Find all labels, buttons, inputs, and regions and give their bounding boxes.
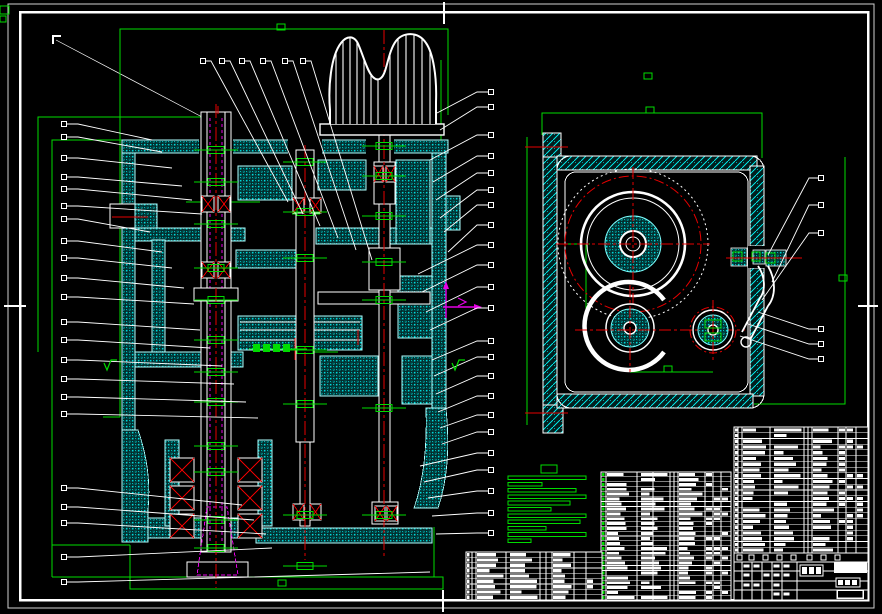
bom-text-blob (607, 522, 625, 525)
bom-text-blob (743, 457, 756, 460)
bom-text-blob (774, 445, 798, 448)
bom-text-blob (813, 457, 827, 460)
bom-text-blob (553, 569, 562, 572)
bom-text-blob (679, 567, 689, 570)
title-block-text-blob (774, 574, 780, 577)
bom-text-blob (722, 571, 728, 574)
bom-text-blob (714, 512, 720, 515)
dim-text-blob (273, 344, 280, 352)
bom-text-blob (847, 486, 853, 489)
bom-text-blob (641, 478, 655, 481)
bom-text-blob (641, 562, 659, 565)
bom-text-blob (477, 574, 503, 577)
bom-text-blob (743, 445, 766, 448)
bom-text-blob (857, 508, 863, 511)
dimension-marker-square (644, 73, 652, 79)
bom-index-mark (467, 569, 470, 572)
bom-text-blob (641, 488, 655, 491)
bom-text-blob (847, 440, 853, 443)
bom-text-blob (706, 522, 712, 525)
tech-requirements-line (508, 489, 576, 493)
title-block-text-blob (744, 584, 750, 587)
leader-line (772, 205, 821, 282)
bom-text-blob (607, 493, 629, 496)
bom-text-blob (714, 552, 720, 555)
tech-requirements-line (508, 526, 546, 530)
bom-text-blob (587, 585, 593, 588)
bom-text-blob (847, 428, 853, 431)
bom-index-mark (735, 549, 738, 552)
title-block-glyph-blob (802, 567, 807, 574)
bom-text-blob (714, 517, 720, 520)
leader-line (64, 124, 152, 140)
bom-text-blob (641, 552, 666, 555)
bom-text-blob (714, 581, 720, 584)
balloon-marker (62, 175, 67, 180)
bom-text-blob (722, 591, 728, 594)
balloon-marker (62, 295, 67, 300)
bom-text-blob (714, 586, 720, 589)
balloon-marker (489, 451, 494, 456)
bom-index-mark (467, 585, 470, 588)
bom-text-blob (641, 537, 650, 540)
bom-text-blob (706, 567, 712, 570)
bom-text-blob (510, 580, 537, 583)
balloon-marker (489, 263, 494, 268)
bom-table-bom_right (734, 427, 868, 553)
bom-text-blob (813, 497, 829, 500)
bom-text-blob (813, 440, 832, 443)
bom-text-blob (774, 520, 786, 523)
bom-text-blob (774, 434, 786, 437)
bom-index-mark (735, 543, 738, 546)
bom-text-blob (641, 473, 667, 476)
bom-text-blob (641, 567, 661, 570)
bom-text-blob (477, 590, 500, 593)
bom-text-blob (553, 558, 563, 561)
bom-text-blob (839, 491, 845, 494)
bom-text-blob (743, 520, 760, 523)
title-block-header-square (737, 555, 742, 560)
bom-index-mark (735, 520, 738, 523)
bom-text-blob (607, 596, 635, 599)
balloon-marker (261, 59, 266, 64)
bom-index-mark (467, 596, 470, 599)
bom-text-blob (607, 507, 626, 510)
bom-index-mark (735, 457, 738, 460)
bom-index-mark (602, 493, 605, 496)
balloon-marker (489, 306, 494, 311)
balloon-marker (819, 231, 824, 236)
balloon-marker (62, 555, 67, 560)
bom-text-blob (679, 591, 696, 594)
title-block-text-blob (754, 565, 760, 568)
leader-line (437, 92, 491, 113)
bom-text-blob (774, 451, 783, 454)
title-block-text-blob (744, 574, 750, 577)
tech-requirements-line (508, 514, 586, 518)
bom-text-blob (679, 503, 691, 506)
bom-text-blob (743, 428, 756, 431)
title-block-text-blob (774, 593, 780, 596)
dimension-marker-square (664, 366, 672, 372)
leader-line (442, 432, 491, 444)
bom-text-blob (847, 514, 853, 517)
title-block-text-blob (784, 565, 790, 568)
bom-index-mark (735, 463, 738, 466)
bom-text-blob (679, 562, 692, 565)
balloon-marker (819, 176, 824, 181)
balloon-marker (62, 187, 67, 192)
bom-index-mark (602, 542, 605, 545)
corner-mark (53, 36, 61, 44)
bom-text-blob (839, 451, 845, 454)
leader-line (768, 178, 821, 255)
bom-text-blob (743, 480, 754, 483)
bom-text-blob (641, 547, 667, 550)
balloon-marker (62, 521, 67, 526)
bom-text-blob (722, 498, 728, 501)
bom-table-bom_middle (601, 472, 731, 600)
bom-text-blob (477, 564, 496, 567)
bom-index-mark (602, 522, 605, 525)
bom-index-mark (735, 537, 738, 540)
balloon-marker (489, 203, 494, 208)
bom-text-blob (774, 514, 787, 517)
bom-text-blob (839, 503, 845, 506)
bom-text-blob (641, 596, 667, 599)
balloon-marker (489, 355, 494, 360)
bom-text-blob (679, 571, 688, 574)
bom-text-blob (641, 532, 653, 535)
bom-text-blob (679, 498, 697, 501)
bom-text-blob (813, 526, 831, 529)
balloon-marker (301, 59, 306, 64)
leader-line (418, 245, 491, 274)
bom-text-blob (679, 473, 695, 476)
balloon-marker (489, 188, 494, 193)
bom-index-mark (735, 445, 738, 448)
bom-text-blob (706, 473, 712, 476)
balloon-marker (62, 156, 67, 161)
title-block-header-square (777, 555, 782, 560)
title-block-header-square (763, 555, 768, 560)
bom-text-blob (839, 428, 845, 431)
bom-text-blob (813, 486, 829, 489)
bom-text-blob (813, 451, 823, 454)
bom-text-blob (774, 480, 783, 483)
technical-requirements-block (508, 465, 586, 543)
bom-text-blob (607, 581, 630, 584)
bom-text-blob (722, 547, 728, 550)
bom-text-blob (714, 537, 720, 540)
bom-text-blob (641, 581, 650, 584)
balloon-marker (240, 59, 245, 64)
bom-text-blob (706, 557, 712, 560)
bom-index-mark (467, 558, 470, 561)
bom-text-blob (553, 574, 565, 577)
bom-text-blob (857, 497, 863, 500)
bom-text-blob (587, 580, 593, 583)
bom-text-blob (510, 574, 529, 577)
title-block-text-blob (774, 584, 780, 587)
tech-requirements-title (541, 465, 557, 473)
bom-index-mark (735, 497, 738, 500)
balloon-marker (62, 505, 67, 510)
bom-index-mark (602, 517, 605, 520)
bom-text-blob (743, 463, 761, 466)
title-block-text-blob (764, 574, 770, 577)
balloon-marker (62, 580, 67, 585)
bom-text-blob (641, 498, 663, 501)
balloon-marker (489, 489, 494, 494)
bom-index-mark (602, 473, 605, 476)
balloon-marker (489, 171, 494, 176)
bom-text-blob (743, 549, 764, 552)
leader-line (64, 548, 272, 557)
title-block-header-square (807, 555, 812, 560)
bom-text-blob (774, 503, 787, 506)
bom-text-blob (679, 532, 696, 535)
bom-text-blob (553, 564, 571, 567)
bom-text-blob (743, 531, 761, 534)
bom-index-mark (735, 491, 738, 494)
bom-text-blob (857, 474, 863, 477)
bom-index-mark (467, 580, 470, 583)
bom-text-blob (641, 571, 657, 574)
bom-text-blob (813, 428, 828, 431)
bom-text-blob (607, 512, 620, 515)
bom-text-blob (477, 596, 493, 599)
bom-text-blob (641, 512, 650, 515)
bom-text-blob (607, 488, 626, 491)
edge-mark (0, 16, 6, 22)
bom-text-blob (607, 537, 619, 540)
balloon-marker (220, 59, 225, 64)
balloon-marker (489, 413, 494, 418)
bom-index-mark (467, 553, 470, 556)
bom-text-blob (743, 468, 760, 471)
cad-sheet (0, 0, 882, 614)
bom-index-mark (602, 532, 605, 535)
bom-text-blob (706, 483, 712, 486)
bom-text-blob (743, 497, 753, 500)
bom-text-blob (774, 463, 796, 466)
bom-text-blob (510, 585, 536, 588)
dim-text-blob (263, 344, 270, 352)
balloon-marker (489, 154, 494, 159)
balloon-marker (819, 203, 824, 208)
bom-text-blob (813, 463, 826, 466)
bom-text-blob (706, 596, 712, 599)
tech-requirements-line (508, 539, 531, 543)
title-block-header-square (791, 555, 796, 560)
side-housing (543, 133, 764, 433)
bom-text-blob (679, 488, 691, 491)
dim-text-blob (283, 344, 290, 352)
bom-text-blob (813, 508, 834, 511)
bom-text-blob (813, 549, 833, 552)
bom-index-mark (602, 503, 605, 506)
bom-text-blob (706, 517, 712, 520)
bom-text-blob (743, 526, 753, 529)
title-block-header-square (835, 555, 840, 560)
bom-text-blob (857, 486, 863, 489)
bom-text-blob (607, 567, 628, 570)
bom-text-blob (679, 483, 696, 486)
bom-text-blob (839, 520, 845, 523)
bom-text-blob (510, 564, 525, 567)
balloon-marker (489, 394, 494, 399)
bom-text-blob (722, 488, 728, 491)
bom-index-mark (735, 428, 738, 431)
bom-text-blob (857, 514, 863, 517)
bom-text-blob (607, 503, 621, 506)
leader-line (758, 312, 821, 329)
bom-text-blob (553, 596, 566, 599)
balloon-marker (819, 327, 824, 332)
bom-index-mark (602, 483, 605, 486)
balloon-marker (489, 105, 494, 110)
leader-line (64, 241, 162, 252)
horizontal-rod (318, 292, 430, 304)
bom-text-blob (679, 581, 696, 584)
bom-text-blob (607, 557, 621, 560)
bom-text-blob (706, 581, 712, 584)
tech-requirements-line (508, 533, 586, 537)
bom-text-blob (706, 552, 712, 555)
bom-index-mark (467, 574, 470, 577)
title-block-glyph-blob (809, 567, 814, 574)
tech-requirements-line (508, 501, 570, 505)
bom-text-blob (641, 517, 657, 520)
title-block-text-blob (774, 565, 780, 568)
tech-requirements-line (508, 508, 551, 512)
title-block-header-square (749, 555, 754, 560)
bom-index-mark (735, 503, 738, 506)
bom-text-blob (607, 562, 625, 565)
bom-text-blob (847, 497, 853, 500)
leader-line (762, 233, 821, 300)
bom-text-blob (607, 483, 626, 486)
balloon-marker (489, 468, 494, 473)
balloon-marker (62, 276, 67, 281)
balloon-marker (819, 342, 824, 347)
bom-text-blob (679, 547, 687, 550)
dim-text-blob (253, 344, 260, 352)
bom-text-blob (607, 498, 620, 501)
balloon-marker (489, 430, 494, 435)
front-section-view (110, 30, 460, 588)
bom-text-blob (857, 445, 863, 448)
bom-text-blob (743, 543, 765, 546)
bom-text-blob (641, 507, 664, 510)
bom-text-blob (510, 569, 525, 572)
bom-index-mark (735, 474, 738, 477)
ucs-icon (443, 281, 482, 318)
bom-text-blob (839, 480, 845, 483)
bom-text-blob (679, 517, 690, 520)
bom-table-bom_bottom (466, 552, 602, 600)
balloon-marker (62, 135, 67, 140)
bom-text-blob (743, 440, 762, 443)
bom-text-blob (641, 527, 658, 530)
balloon-marker (489, 374, 494, 379)
bom-text-blob (847, 537, 853, 540)
balloon-marker (489, 243, 494, 248)
bom-text-blob (774, 537, 794, 540)
title-block-header-square (821, 555, 826, 560)
bom-text-blob (607, 517, 625, 520)
title-block-glyph-blob (838, 580, 843, 585)
balloon-marker (489, 285, 494, 290)
bom-text-blob (641, 522, 655, 525)
balloon-marker (489, 511, 494, 516)
leader-line (64, 340, 210, 348)
bom-text-blob (477, 580, 493, 583)
bom-text-blob (714, 562, 720, 565)
balloon-marker (62, 358, 67, 363)
bom-text-blob (714, 507, 720, 510)
balloon-marker (489, 133, 494, 138)
dimension-marker-square (839, 275, 847, 281)
bom-text-blob (607, 547, 624, 550)
bom-text-blob (607, 532, 618, 535)
bom-text-blob (510, 596, 537, 599)
dimension-marker-square (646, 107, 654, 113)
dimension-marker-square (278, 580, 286, 586)
title-block-glyph-blob (816, 567, 821, 574)
title-block-text-blob (784, 574, 790, 577)
balloon-marker (62, 122, 67, 127)
bom-index-mark (735, 486, 738, 489)
bom-index-mark (602, 512, 605, 515)
bom-text-blob (743, 474, 761, 477)
bom-text-blob (813, 474, 828, 477)
bom-text-blob (607, 552, 619, 555)
casting-workpiece (320, 32, 444, 135)
bom-text-blob (477, 558, 498, 561)
bom-text-blob (813, 543, 825, 546)
bom-text-blob (813, 491, 827, 494)
bom-index-mark (735, 451, 738, 454)
title-block-text-blob (744, 565, 750, 568)
balloon-marker (62, 256, 67, 261)
bom-index-mark (735, 531, 738, 534)
bom-text-blob (847, 520, 853, 523)
bom-text-blob (847, 445, 853, 448)
bom-text-blob (857, 503, 863, 506)
bom-index-mark (735, 508, 738, 511)
bom-text-blob (813, 503, 826, 506)
bom-text-blob (722, 557, 728, 560)
bom-text-blob (774, 531, 793, 534)
bom-text-blob (839, 457, 845, 460)
bom-text-blob (743, 491, 754, 494)
bom-text-blob (743, 508, 759, 511)
leader-line (432, 513, 491, 516)
bom-text-blob (706, 507, 712, 510)
bom-text-blob (679, 537, 695, 540)
bom-text-blob (774, 468, 788, 471)
balloon-marker (201, 59, 206, 64)
balloon-marker (62, 486, 67, 491)
housing (110, 138, 460, 543)
bom-index-mark (735, 526, 738, 529)
leader-line (436, 533, 491, 534)
bom-index-mark (602, 488, 605, 491)
bom-text-blob (607, 473, 624, 476)
